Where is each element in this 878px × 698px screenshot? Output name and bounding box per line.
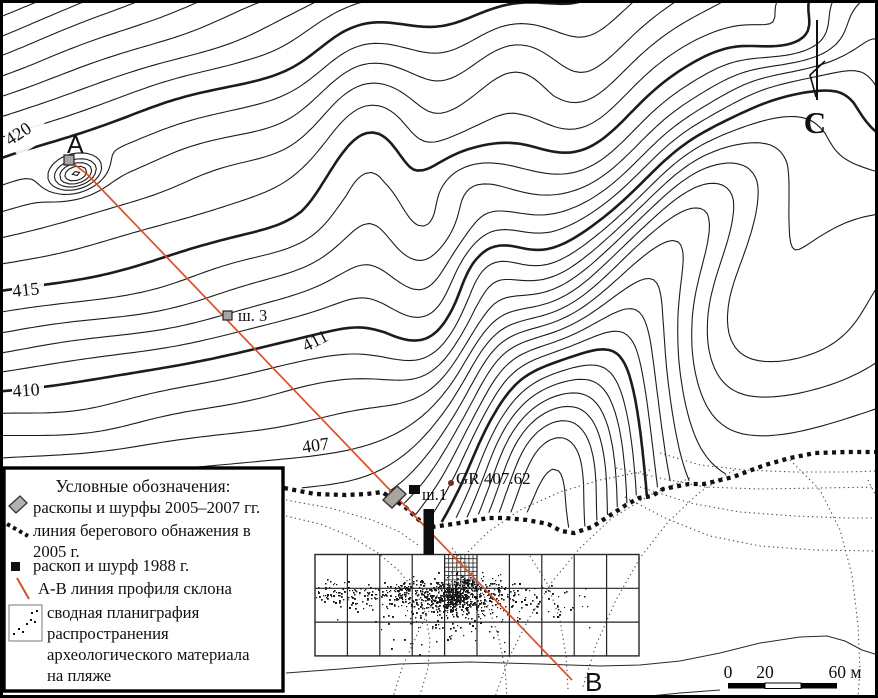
svg-text:0: 0	[724, 662, 733, 682]
svg-text:Условные обозначения:: Условные обозначения:	[55, 476, 230, 496]
svg-text:GR 407.62: GR 407.62	[456, 469, 531, 488]
svg-text:раскопы и шурфы 2005–2007 гг.: раскопы и шурфы 2005–2007 гг.	[33, 498, 260, 517]
svg-text:60 м: 60 м	[829, 662, 862, 682]
svg-text:А-В линия профиля склона: А-В линия профиля склона	[38, 579, 233, 598]
svg-text:415: 415	[11, 278, 40, 301]
svg-text:407: 407	[301, 433, 331, 457]
svg-text:20: 20	[756, 662, 774, 682]
svg-text:распространения: распространения	[47, 624, 169, 643]
svg-text:А: А	[67, 131, 84, 159]
svg-text:В: В	[585, 667, 602, 697]
svg-text:С: С	[804, 105, 826, 140]
svg-text:линия берегового обнажения в: линия берегового обнажения в	[33, 521, 251, 540]
svg-text:на пляже: на пляже	[47, 666, 111, 685]
svg-text:410: 410	[12, 379, 40, 401]
svg-text:ш.1: ш.1	[422, 485, 447, 504]
svg-text:ш. 3: ш. 3	[238, 306, 267, 325]
svg-text:сводная планиграфия: сводная планиграфия	[47, 603, 200, 622]
svg-text:раскоп и шурф 1988 г.: раскоп и шурф 1988 г.	[33, 556, 189, 575]
svg-text:археологического материала: археологического материала	[47, 645, 250, 664]
